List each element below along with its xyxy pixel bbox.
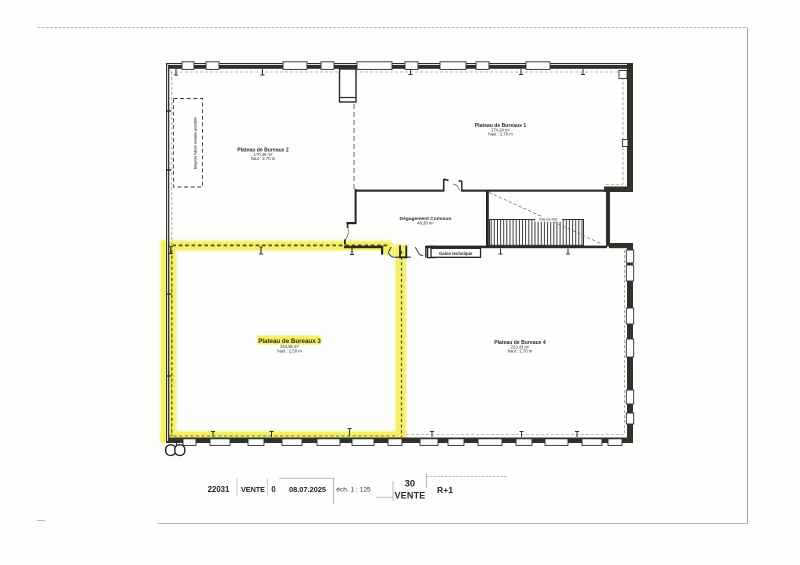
svg-text:haut : 2,78 m: haut : 2,78 m [488,132,513,137]
svg-text:éch. 1 : 125: éch. 1 : 125 [336,487,371,494]
svg-text:Vide sur RdC: Vide sur RdC [539,218,559,222]
svg-text:haut : 2,70 m: haut : 2,70 m [508,349,533,354]
svg-text:30: 30 [404,479,415,490]
svg-text:0: 0 [271,485,276,494]
svg-text:VENTE: VENTE [394,491,425,501]
svg-text:haut : 2,70 m: haut : 2,70 m [251,156,276,161]
svg-text:haut : 2,50 m: haut : 2,50 m [277,348,302,353]
svg-text:22031: 22031 [208,485,230,494]
svg-text:08.07.2025: 08.07.2025 [289,485,326,494]
svg-text:VENTE: VENTE [241,485,265,494]
svg-text:48,38 m²: 48,38 m² [417,221,434,226]
svg-text:Gaine technique: Gaine technique [439,251,473,256]
svg-text:R+1: R+1 [437,485,453,495]
svg-text:Emprise future escalier possib: Emprise future escalier possible [194,117,198,169]
